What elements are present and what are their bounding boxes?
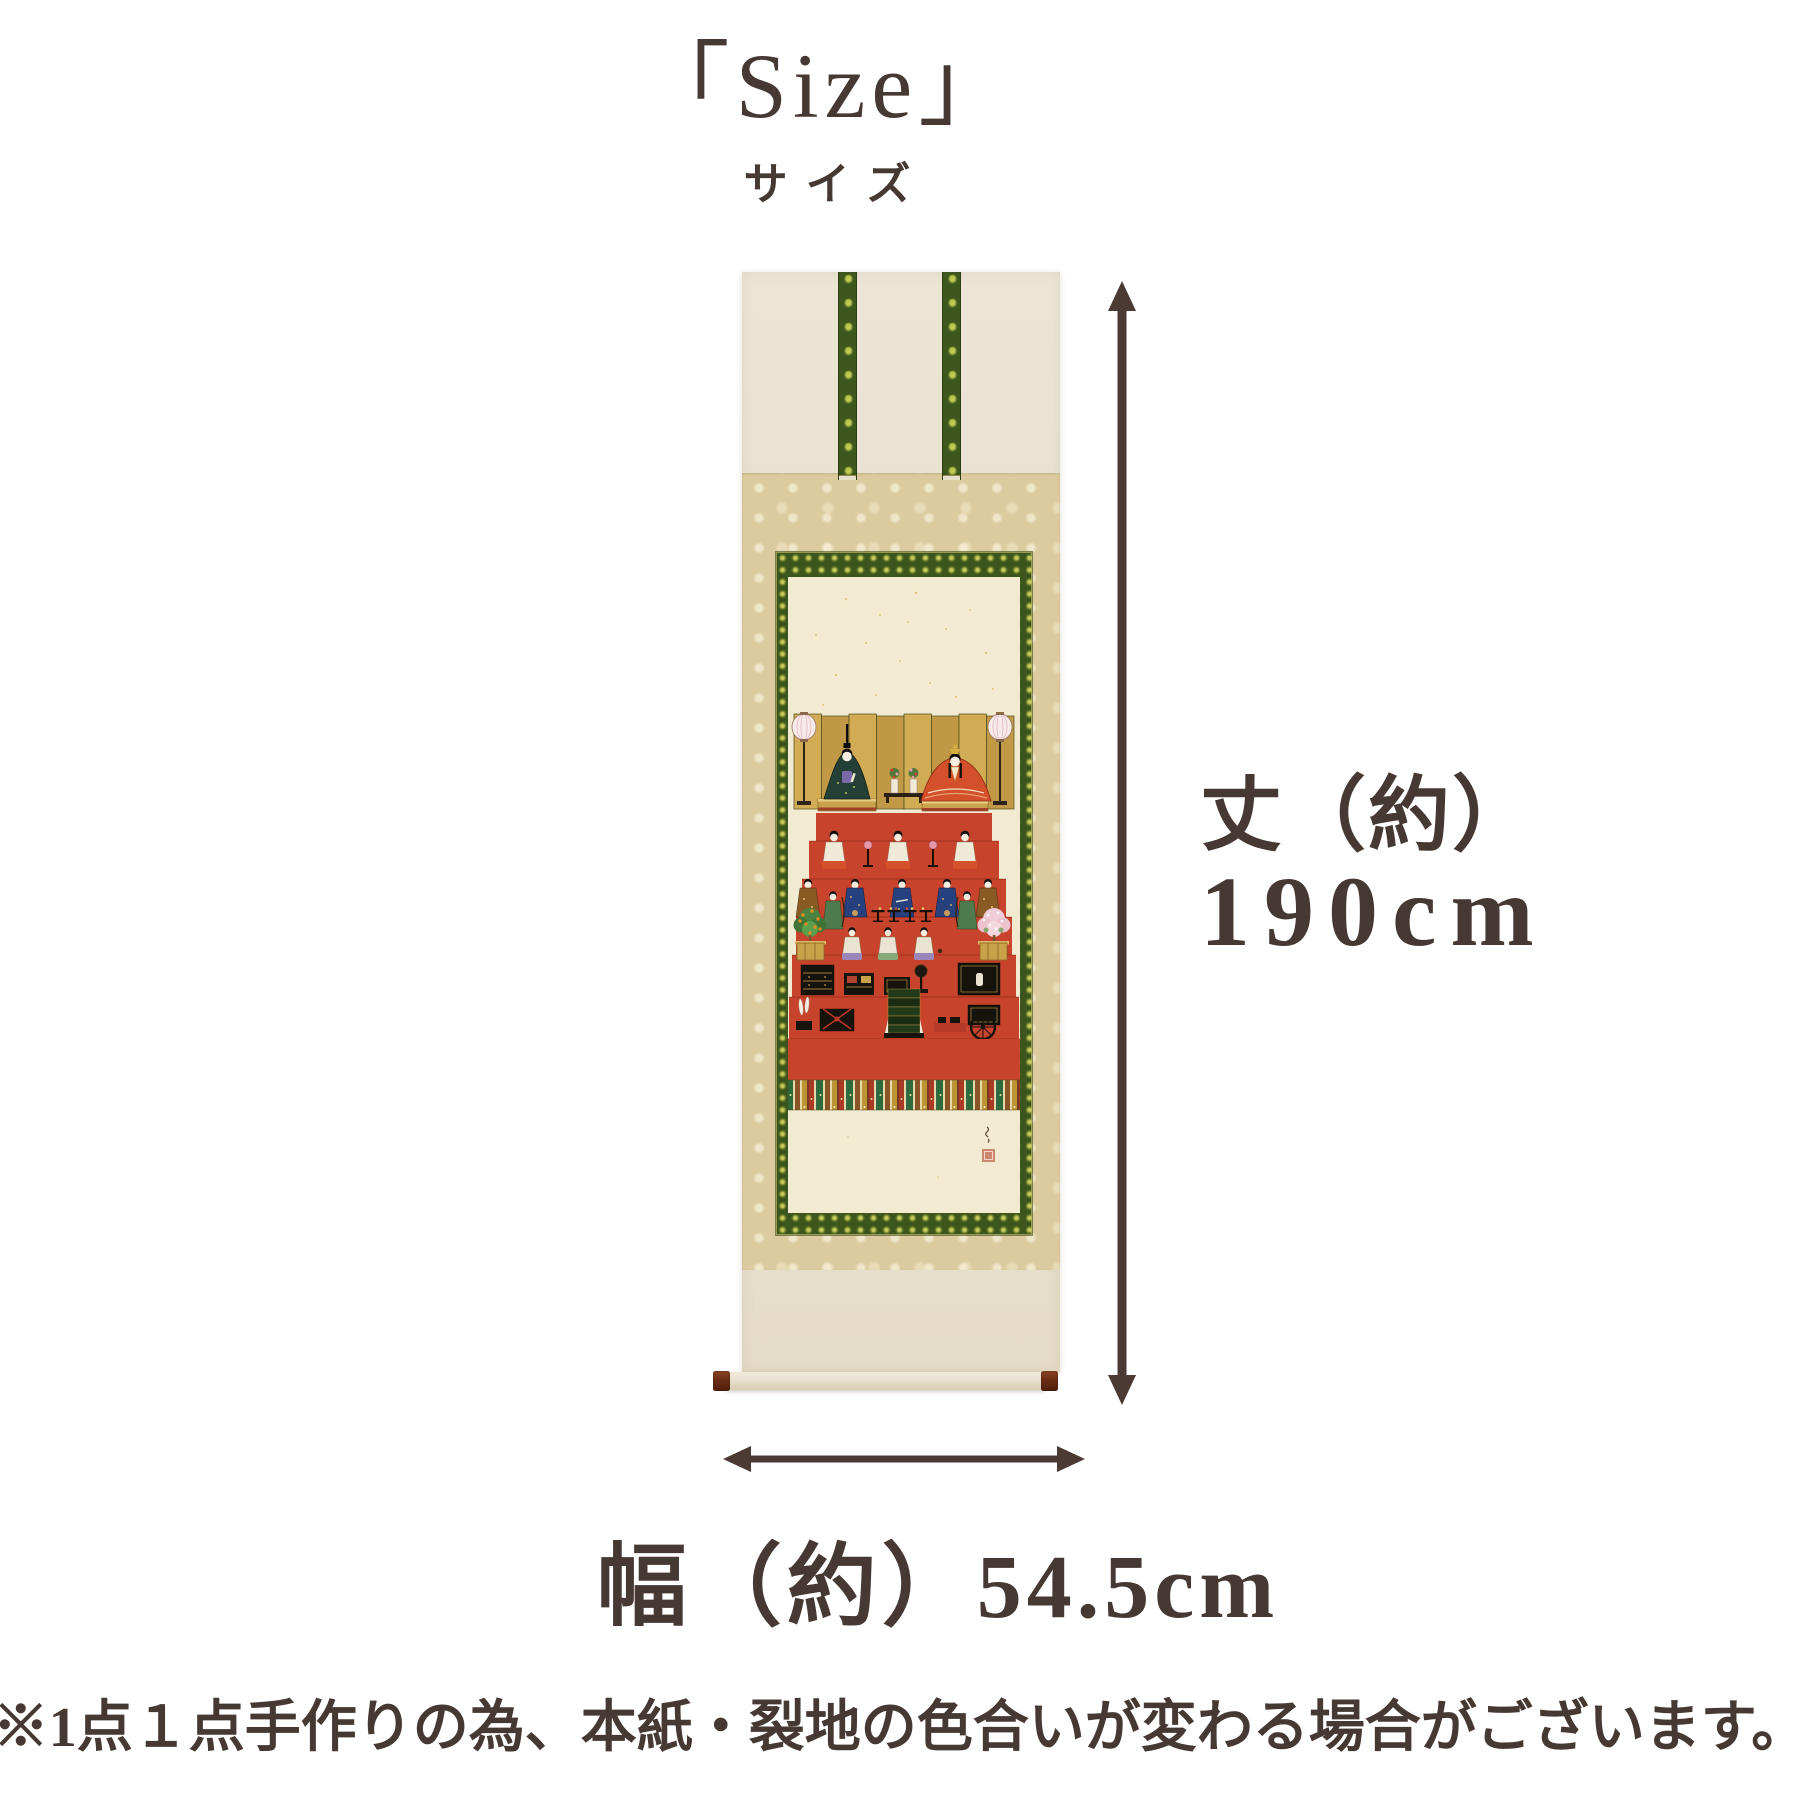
height-arrow-icon bbox=[1104, 281, 1140, 1405]
striped-cloth bbox=[788, 1080, 1020, 1110]
width-dimension-label: 幅（約） bbox=[597, 1538, 977, 1637]
width-dimension: 幅（約）54.5cm bbox=[597, 1513, 1279, 1643]
hina-painting-art bbox=[788, 577, 1020, 1213]
kakejiku-product-photo bbox=[713, 272, 1058, 1393]
roller-knob-right bbox=[1041, 1371, 1058, 1391]
height-dimension-value: 190cm bbox=[1200, 854, 1548, 969]
width-dimension-value: 54.5cm bbox=[977, 1538, 1279, 1637]
scroll-mount bbox=[742, 272, 1060, 1372]
roller-bar bbox=[726, 1372, 1045, 1390]
roller-rod bbox=[713, 1370, 1058, 1393]
hina-doll-painting bbox=[788, 577, 1020, 1213]
futai-ribbon-left bbox=[838, 272, 857, 480]
height-dimension-label: 丈（約） bbox=[1200, 748, 1536, 867]
size-infographic: 「Size」 サイズ bbox=[0, 0, 1800, 1800]
page-subtitle: サイズ bbox=[744, 148, 929, 212]
page-title: 「Size」 bbox=[638, 38, 1016, 135]
futai-ribbon-right bbox=[942, 272, 961, 480]
width-arrow-icon bbox=[723, 1444, 1085, 1474]
roller-knob-left bbox=[713, 1371, 730, 1391]
handmade-note-text: ※1点１点手作りの為、本紙・裂地の色合いが変わる場合がございます。 bbox=[0, 1682, 1800, 1763]
